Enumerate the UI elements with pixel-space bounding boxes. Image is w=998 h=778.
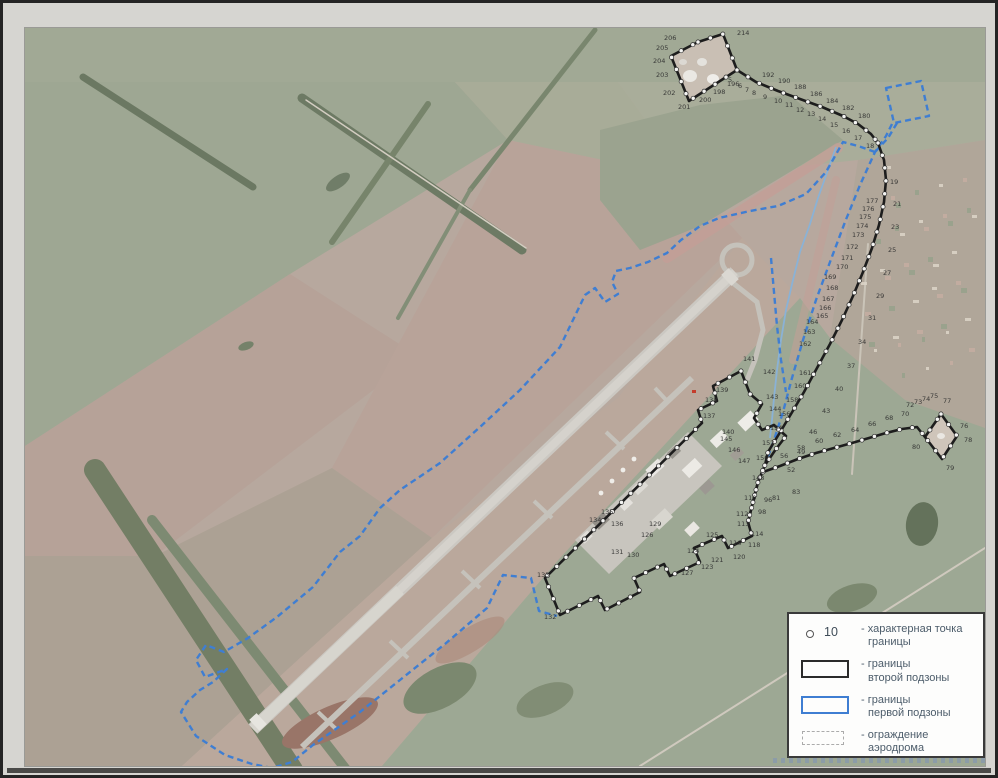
svg-text:70: 70	[901, 410, 909, 418]
svg-text:136: 136	[611, 520, 623, 528]
svg-text:83: 83	[792, 488, 800, 496]
svg-text:127: 127	[681, 569, 693, 577]
svg-text:10: 10	[774, 97, 782, 105]
svg-text:206: 206	[664, 34, 676, 42]
svg-text:43: 43	[822, 407, 830, 415]
svg-text:14: 14	[818, 115, 826, 123]
svg-text:170: 170	[836, 263, 848, 271]
svg-text:147: 147	[738, 457, 750, 465]
svg-text:141: 141	[743, 355, 755, 363]
svg-text:203: 203	[656, 71, 668, 79]
svg-text:186: 186	[810, 90, 822, 98]
svg-text:18: 18	[866, 142, 874, 150]
svg-text:182: 182	[842, 104, 854, 112]
svg-text:12: 12	[796, 106, 804, 114]
svg-text:198: 198	[713, 88, 725, 96]
svg-text:58: 58	[797, 444, 805, 452]
svg-text:205: 205	[656, 44, 668, 52]
svg-text:79: 79	[946, 464, 954, 472]
svg-text:150: 150	[756, 454, 768, 462]
svg-text:23: 23	[891, 223, 899, 231]
svg-text:11: 11	[785, 101, 793, 109]
svg-text:200: 200	[699, 96, 711, 104]
legend: 10 - характерная точка границы - границы…	[787, 612, 985, 758]
svg-text:126: 126	[641, 531, 653, 539]
svg-text:142: 142	[763, 368, 775, 376]
svg-text:68: 68	[885, 414, 893, 422]
svg-text:16: 16	[842, 127, 850, 135]
svg-text:176: 176	[862, 205, 874, 213]
legend-row-second-subzone: - границы второй подзоны	[799, 658, 977, 684]
legend-text: - характерная точка границы	[861, 623, 962, 649]
svg-text:154: 154	[770, 424, 782, 432]
svg-text:64: 64	[851, 426, 859, 434]
svg-text:172: 172	[846, 243, 858, 251]
svg-text:152: 152	[762, 439, 774, 447]
svg-text:110: 110	[744, 494, 756, 502]
svg-text:66: 66	[868, 420, 876, 428]
legend-text: - ограждение аэродрома	[861, 729, 928, 755]
svg-text:15: 15	[830, 121, 838, 129]
svg-text:78: 78	[964, 436, 972, 444]
svg-text:80: 80	[912, 443, 920, 451]
first-subzone-symbol	[801, 696, 849, 714]
svg-text:40: 40	[835, 385, 843, 393]
svg-text:143: 143	[766, 393, 778, 401]
legend-row-point: 10 - характерная точка границы	[799, 623, 977, 649]
svg-text:98: 98	[758, 508, 766, 516]
point-symbol: 10	[799, 623, 861, 640]
svg-text:62: 62	[833, 431, 841, 439]
svg-text:162: 162	[799, 340, 811, 348]
svg-text:188: 188	[794, 83, 806, 91]
svg-text:21: 21	[893, 200, 901, 208]
svg-text:135: 135	[601, 508, 613, 516]
svg-text:124: 124	[687, 547, 699, 555]
svg-text:137: 137	[703, 412, 715, 420]
svg-text:177: 177	[866, 197, 878, 205]
svg-text:166: 166	[819, 304, 831, 312]
svg-text:163: 163	[803, 328, 815, 336]
svg-text:29: 29	[876, 292, 884, 300]
svg-text:123: 123	[701, 563, 713, 571]
svg-text:131: 131	[611, 548, 623, 556]
svg-text:60: 60	[815, 437, 823, 445]
svg-text:202: 202	[663, 89, 675, 97]
svg-text:81: 81	[772, 494, 780, 502]
svg-text:158: 158	[786, 396, 798, 404]
svg-text:184: 184	[826, 97, 838, 105]
legend-text: - границы первой подзоны	[861, 694, 951, 720]
svg-text:75: 75	[930, 392, 938, 400]
svg-text:146: 146	[728, 446, 740, 454]
svg-text:113: 113	[737, 520, 749, 528]
svg-text:7: 7	[745, 86, 749, 94]
legend-text: - границы второй подзоны	[861, 658, 949, 684]
svg-text:8: 8	[752, 89, 756, 97]
svg-text:134: 134	[589, 516, 601, 524]
svg-text:174: 174	[856, 222, 868, 230]
svg-text:160: 160	[794, 382, 806, 390]
svg-text:148: 148	[752, 474, 764, 482]
svg-text:214: 214	[737, 29, 749, 37]
aerodrome-fence-symbol	[802, 731, 844, 745]
svg-text:112: 112	[736, 510, 748, 518]
svg-text:120: 120	[733, 553, 745, 561]
legend-row-fence: - ограждение аэродрома	[799, 729, 977, 755]
second-subzone-symbol	[801, 660, 849, 678]
svg-text:9: 9	[763, 93, 767, 101]
point-number: 10	[824, 625, 838, 640]
svg-text:145: 145	[720, 435, 732, 443]
svg-text:132: 132	[544, 613, 556, 621]
svg-text:180: 180	[858, 112, 870, 120]
scan-noise-strip	[773, 758, 985, 763]
svg-text:133: 133	[537, 571, 549, 579]
svg-text:168: 168	[826, 284, 838, 292]
svg-text:77: 77	[943, 397, 951, 405]
svg-text:114: 114	[751, 530, 763, 538]
svg-text:13: 13	[807, 110, 815, 118]
svg-text:52: 52	[787, 466, 795, 474]
svg-text:171: 171	[841, 254, 853, 262]
svg-text:196: 196	[727, 80, 739, 88]
svg-text:17: 17	[854, 134, 862, 142]
svg-text:25: 25	[888, 246, 896, 254]
svg-text:192: 192	[762, 71, 774, 79]
characteristic-point-icon	[806, 630, 814, 638]
svg-text:46: 46	[809, 428, 817, 436]
svg-text:125: 125	[706, 531, 718, 539]
svg-text:116: 116	[729, 539, 741, 547]
svg-text:37: 37	[847, 362, 855, 370]
svg-text:34: 34	[858, 338, 866, 346]
svg-text:175: 175	[859, 213, 871, 221]
svg-text:129: 129	[649, 520, 661, 528]
svg-text:31: 31	[868, 314, 876, 322]
svg-text:190: 190	[778, 77, 790, 85]
red-mark	[692, 390, 696, 393]
scan-shadow	[7, 768, 991, 773]
svg-text:130: 130	[627, 551, 639, 559]
svg-text:118: 118	[748, 541, 760, 549]
legend-row-first-subzone: - границы первой подзоны	[799, 694, 977, 720]
svg-text:96: 96	[764, 496, 772, 504]
svg-text:161: 161	[799, 369, 811, 377]
svg-text:138: 138	[705, 396, 717, 404]
svg-text:167: 167	[822, 295, 834, 303]
svg-text:173: 173	[852, 231, 864, 239]
svg-text:156: 156	[778, 410, 790, 418]
svg-text:169: 169	[824, 273, 836, 281]
svg-text:139: 139	[716, 386, 728, 394]
svg-text:201: 201	[678, 103, 690, 111]
svg-text:204: 204	[653, 57, 665, 65]
svg-text:56: 56	[780, 452, 788, 460]
svg-text:165: 165	[816, 312, 828, 320]
scanned-map-page: 2012022032042052062122132145678910111213…	[0, 0, 998, 778]
svg-text:19: 19	[890, 178, 898, 186]
svg-text:27: 27	[883, 269, 891, 277]
svg-text:76: 76	[960, 422, 968, 430]
